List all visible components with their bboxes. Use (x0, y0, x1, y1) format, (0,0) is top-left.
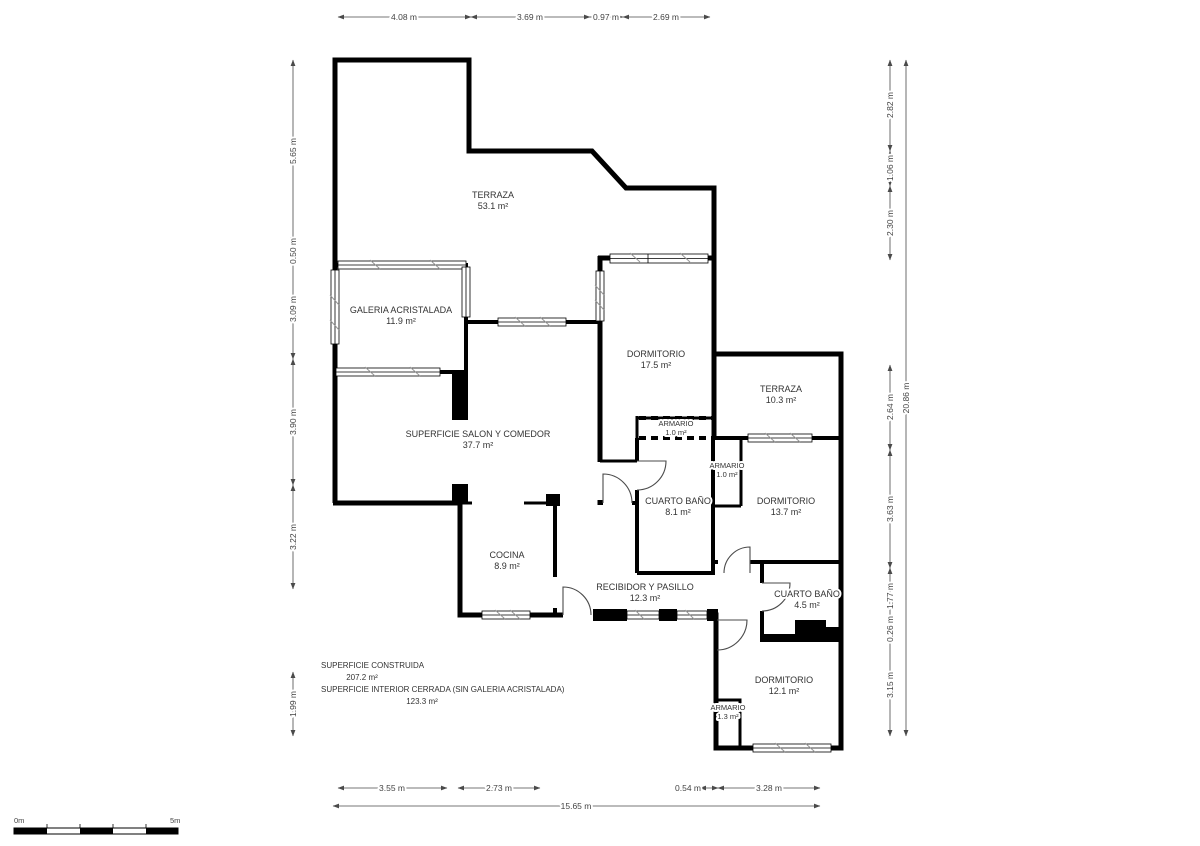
summary-interior-label: SUPERFICIE INTERIOR CERRADA (SIN GALERIA… (321, 685, 565, 694)
dimension-label: 2.69 m (653, 12, 679, 22)
room-area: 8.1 m² (665, 507, 691, 517)
dimension-label: 1.99 m (288, 691, 298, 717)
summary-interior-value: 123.3 m² (406, 697, 438, 706)
dimension-label: 1.06 m (885, 155, 895, 181)
dimension-label: 1.77 m (885, 583, 895, 609)
room-label-bano-2: CUARTO BAÑO (774, 589, 840, 599)
scale-bar-segment (146, 828, 178, 834)
dimension-label: 2.30 m (885, 210, 895, 236)
room-area: 10.3 m² (766, 395, 797, 405)
room-label-armario-2: ARMARIO (709, 461, 744, 470)
door-arc (717, 620, 747, 650)
dimensions-right: 2.82 m 1.06 m 2.30 m 2.64 m 3.63 m 1.77 … (885, 60, 911, 736)
dimensions-top: 4.08 m 3.69 m 0.97 m 2.69 m (338, 12, 710, 22)
dimension-label: 5.65 m (288, 138, 298, 164)
room-area: 1.0 m² (716, 470, 738, 479)
summary-construida-label: SUPERFICIE CONSTRUIDA (321, 661, 425, 670)
room-area: 1.3 m² (717, 712, 739, 721)
floor-plan-drawing: TERRAZA 53.1 m² GALERIA ACRISTALADA 11.9… (0, 0, 1200, 846)
door-arc (603, 474, 632, 503)
floor-plan-page: TERRAZA 53.1 m² GALERIA ACRISTALADA 11.9… (0, 0, 1200, 846)
scale-bar: 0m 5m (14, 816, 180, 834)
scale-bar-ticks (47, 824, 146, 828)
scale-bar-segment (80, 828, 113, 834)
dimensions-left: 5.65 m 0.50 m 3.09 m 3.90 m 3.22 m 1.99 … (288, 60, 298, 736)
dimension-label: 3.90 m (288, 409, 298, 435)
room-label-armario-1: ARMARIO (658, 419, 693, 428)
room-area: 8.9 m² (494, 561, 520, 571)
scale-bar-start-label: 0m (14, 816, 24, 825)
room-label-cocina: COCINA (489, 550, 524, 560)
dimension-label: 3.55 m (379, 783, 405, 793)
dimension-label: 3.63 m (885, 496, 895, 522)
room-label-terraza-2: TERRAZA (760, 384, 802, 394)
room-area: 1.0 m² (665, 428, 687, 437)
dimension-label: 0.54 m (675, 783, 701, 793)
room-area: 17.5 m² (641, 360, 672, 370)
dimension-label: 2.64 m (885, 394, 895, 420)
dimension-label: 2.82 m (885, 92, 895, 118)
room-area: 53.1 m² (478, 201, 509, 211)
dimension-label: 3.28 m (756, 783, 782, 793)
scale-bar-segment (14, 828, 47, 834)
room-label-armario-3: ARMARIO (710, 703, 745, 712)
room-label-dormitorio-2: DORMITORIO (757, 496, 815, 506)
door-arc (637, 461, 666, 490)
dimension-label: 3.69 m (517, 12, 543, 22)
room-area: 13.7 m² (771, 507, 802, 517)
doors (563, 461, 790, 650)
dimension-label: 3.09 m (288, 296, 298, 322)
room-label-galeria: GALERIA ACRISTALADA (350, 305, 452, 315)
room-area: 11.9 m² (386, 316, 416, 326)
dimension-label-total: 20.86 m (901, 383, 911, 414)
dimensions-bottom: 3.55 m 2.73 m 0.54 m 3.28 m 15.65 m (333, 783, 820, 811)
dimension-label: 3.22 m (288, 524, 298, 550)
dimension-label: 3.15 m (885, 672, 895, 698)
surface-summary: SUPERFICIE CONSTRUIDA 207.2 m² SUPERFICI… (321, 661, 565, 706)
room-label-recibidor: RECIBIDOR Y PASILLO (596, 582, 694, 592)
room-label-dormitorio-3: DORMITORIO (755, 675, 813, 685)
scale-bar-end-label: 5m (170, 816, 180, 825)
room-area: 4.5 m² (794, 600, 820, 610)
dimension-label-total: 15.65 m (561, 801, 592, 811)
entrance-door-arc (563, 587, 591, 615)
dimension-label: 0.50 m (288, 238, 298, 264)
room-area: 12.1 m² (769, 686, 800, 696)
room-area: 12.3 m² (630, 593, 661, 603)
dimension-label: 4.08 m (391, 12, 417, 22)
summary-construida-value: 207.2 m² (346, 673, 378, 682)
room-label-bano-1: CUARTO BAÑO (645, 496, 711, 506)
room-label-terraza: TERRAZA (472, 190, 514, 200)
room-label-dormitorio-1: DORMITORIO (627, 349, 685, 359)
dimension-label: 0.97 m (593, 12, 619, 22)
wall-notch (760, 620, 843, 642)
door-arc (724, 547, 750, 573)
dimension-label: 2.73 m (486, 783, 512, 793)
room-label-salon: SUPERFICIE SALON Y COMEDOR (406, 429, 551, 439)
room-area: 37.7 m² (463, 440, 494, 450)
dimension-label: 0.26 m (885, 616, 895, 642)
